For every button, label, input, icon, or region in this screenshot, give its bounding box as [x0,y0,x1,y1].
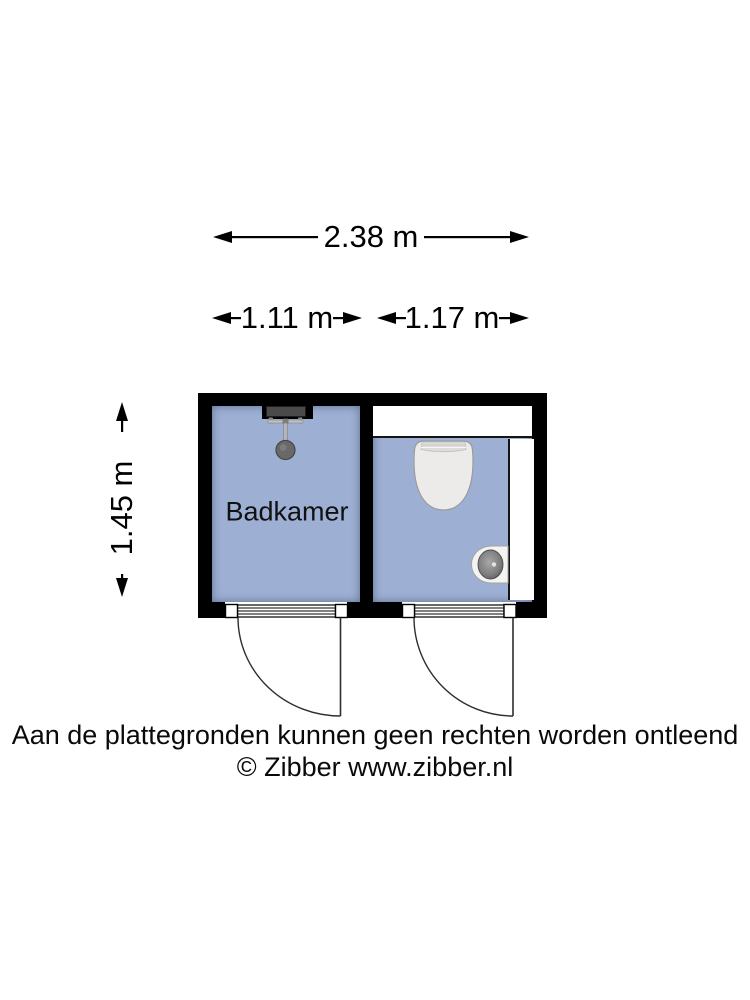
toilet-door-opening [402,602,516,618]
toilet-cistern-unit [373,406,532,438]
dimension-depth-label: 1.45 m [104,461,140,556]
bathroom-door-swing [238,618,341,717]
disclaimer-text: Aan de plattegronden kunnen geen rechten… [0,720,750,751]
dimension-total-width-label: 2.38 m [324,219,419,255]
dimension-bathroom-width-label: 1.11 m [241,300,333,336]
copyright-text: © Zibber www.zibber.nl [0,752,750,783]
bathroom-door-opening [225,602,347,618]
toilet-door-swing [414,618,513,717]
room-name-badkamer: Badkamer [225,497,348,528]
wall-duct-panel [508,439,534,600]
dimension-toilet-width-label: 1.17 m [405,300,500,336]
floorplan-canvas: 2.38 m 1.11 m 1.17 m 1.45 m Badkamer [0,0,750,1000]
shower-niche-shelf [266,406,306,417]
